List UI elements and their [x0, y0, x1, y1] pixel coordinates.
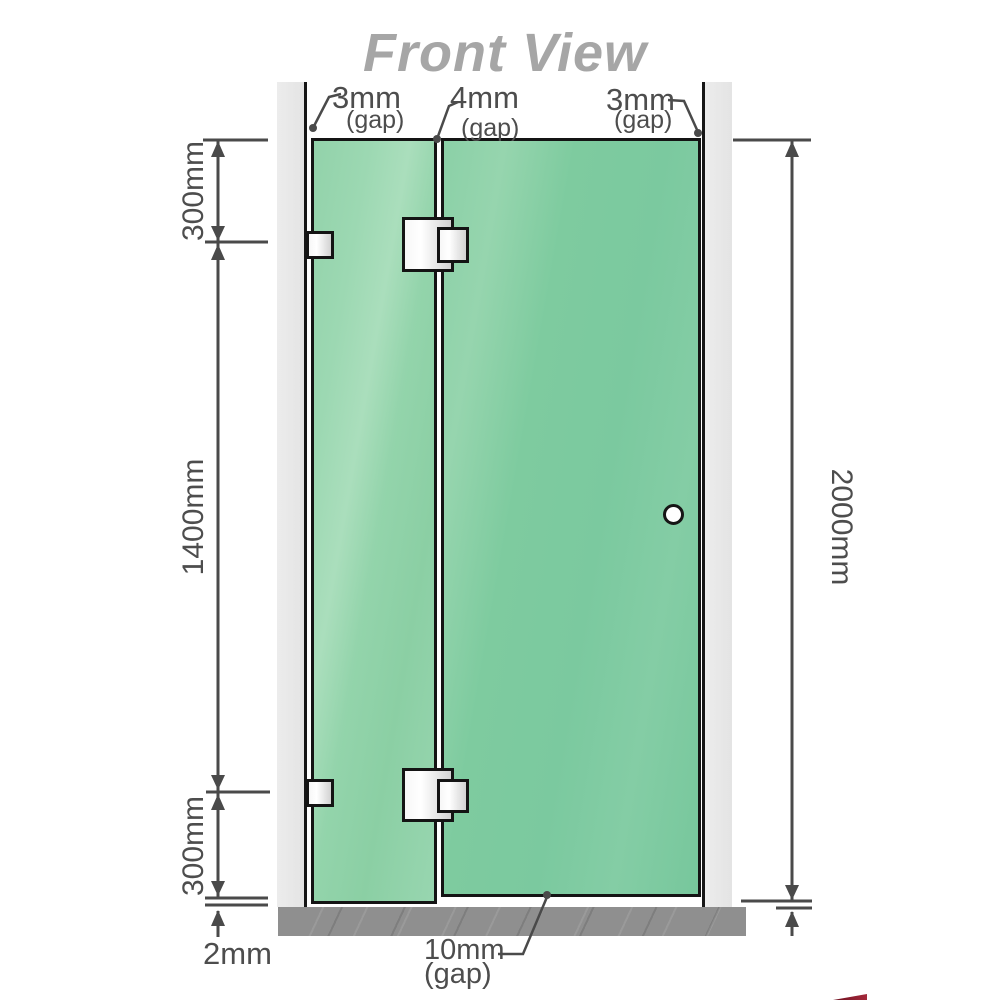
hinge-bottom-clamp: [437, 779, 469, 813]
gap-label-right-unit: (gap): [614, 108, 672, 133]
gap-label-bottom-unit: (gap): [424, 960, 492, 989]
dim-middle-section: 1400mm: [177, 459, 211, 576]
hinge-top-clamp: [437, 227, 469, 263]
floor-base: [278, 907, 746, 936]
dim-bottom-section: 300mm: [177, 796, 211, 896]
front-view-diagram: Front View: [0, 0, 1000, 1000]
gap-label-left-unit: (gap): [346, 108, 404, 133]
dim-total-height: 2000mm: [824, 469, 858, 586]
gap-label-middle-unit: (gap): [461, 116, 519, 141]
dim-top-section: 300mm: [177, 141, 211, 241]
gap-label-middle-value: 4mm: [450, 82, 519, 113]
wall-bracket-bottom: [306, 779, 334, 807]
logo-fragment: [833, 994, 867, 1000]
wall-bracket-top: [306, 231, 334, 259]
door-glass-panel: [441, 138, 701, 897]
dim-floor-gap: 2mm: [203, 938, 272, 969]
door-knob: [663, 504, 684, 525]
left-wall: [277, 82, 307, 907]
right-wall: [702, 82, 732, 907]
diagram-title: Front View: [340, 22, 670, 84]
